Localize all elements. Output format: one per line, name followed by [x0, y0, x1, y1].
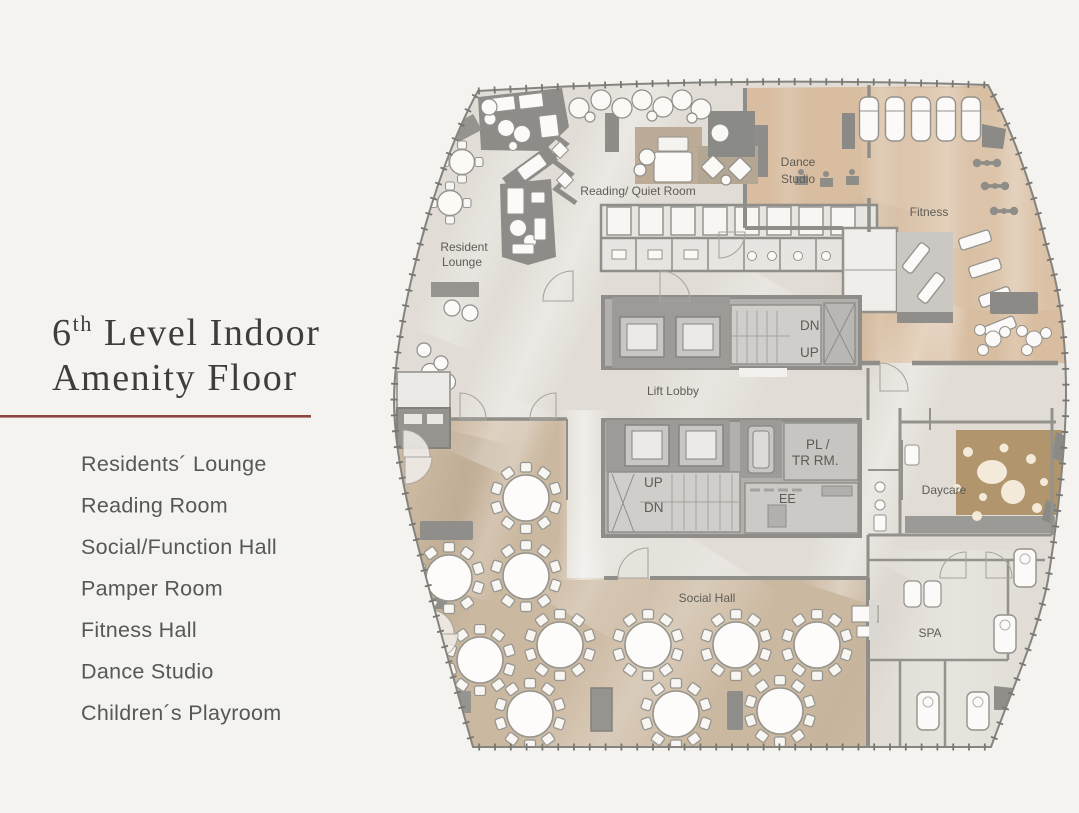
svg-text:Fitness: Fitness: [910, 205, 949, 219]
svg-text:UP: UP: [800, 345, 819, 360]
svg-text:6th Level Indoor: 6th Level Indoor: [52, 311, 321, 354]
svg-text:PL /: PL /: [806, 437, 830, 452]
svg-text:DN: DN: [644, 500, 664, 515]
svg-text:Reading/ Quiet Room: Reading/ Quiet Room: [580, 184, 695, 198]
svg-text:TR RM.: TR RM.: [792, 453, 839, 468]
svg-text:SPA: SPA: [918, 626, 941, 640]
svg-text:Pamper Room: Pamper Room: [81, 577, 223, 601]
svg-text:Dance: Dance: [781, 155, 816, 169]
svg-text:Dance Studio: Dance Studio: [81, 660, 214, 684]
svg-text:Resident: Resident: [440, 240, 488, 254]
svg-text:Daycare: Daycare: [922, 483, 967, 497]
svg-text:Fitness Hall: Fitness Hall: [81, 618, 197, 642]
svg-text:Lift Lobby: Lift Lobby: [647, 384, 699, 398]
svg-text:Children´s Playroom: Children´s Playroom: [81, 701, 281, 725]
svg-text:Lounge: Lounge: [442, 255, 482, 269]
svg-text:Reading Room: Reading Room: [81, 494, 228, 518]
svg-text:EE: EE: [779, 492, 796, 506]
svg-text:Social/Function Hall: Social/Function Hall: [81, 535, 277, 559]
svg-text:Studio: Studio: [781, 172, 815, 186]
svg-text:Social Hall: Social Hall: [679, 591, 736, 605]
svg-text:DN: DN: [800, 318, 820, 333]
svg-text:Residents´ Lounge: Residents´ Lounge: [81, 452, 267, 476]
svg-text:UP: UP: [644, 475, 663, 490]
svg-text:Amenity Floor: Amenity Floor: [52, 357, 298, 399]
